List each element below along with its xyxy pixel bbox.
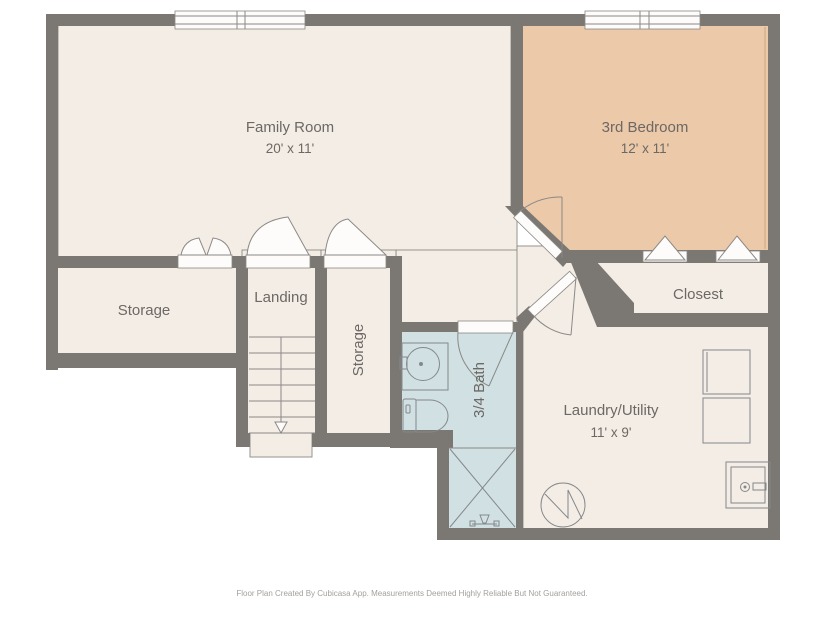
sink-drain: [419, 362, 423, 366]
floor-plan-svg: Family Room 20' x 11' 3rd Bedroom 12' x …: [0, 0, 825, 619]
stair-exit-stub: [250, 433, 312, 457]
threshold-storage-bifold: [178, 255, 232, 268]
landing-label: Landing: [254, 289, 307, 306]
threshold-landing-door: [246, 255, 310, 268]
laundry-label: Laundry/Utility: [563, 402, 659, 419]
wall-closet-bottom: [618, 313, 780, 327]
wall-storage-mid-right: [390, 256, 402, 448]
bedroom-label: 3rd Bedroom: [602, 119, 689, 136]
wall-bedroom-left: [511, 14, 523, 207]
bedroom-floor: [511, 20, 774, 258]
threshold-bath-door: [458, 321, 513, 333]
closet-label: Closest: [673, 286, 724, 303]
wall-stair-left: [236, 256, 248, 445]
footer-disclaimer: Floor Plan Created By Cubicasa App. Meas…: [236, 589, 587, 598]
wall-right: [768, 14, 780, 540]
family-room-dims: 20' x 11': [266, 141, 314, 156]
window-family-room: [175, 11, 305, 29]
bath-label: 3/4 Bath: [471, 362, 488, 418]
wall-stair-bottom-a: [236, 433, 250, 447]
wall-landing-right: [315, 256, 327, 445]
wall-stair-bottom-b: [312, 433, 402, 447]
bedroom-dims: 12' x 11': [621, 141, 669, 156]
wall-bottom: [437, 528, 780, 540]
threshold-storage-mid-door: [324, 255, 386, 268]
wall-storage-bottom: [46, 353, 248, 368]
window-frame: [585, 11, 700, 29]
family-room-label: Family Room: [246, 119, 334, 136]
wall-left: [46, 14, 58, 370]
storage-mid-label: Storage: [350, 324, 367, 377]
wall-bath-right: [516, 322, 523, 540]
wall-bath-top-a: [396, 322, 458, 332]
laundry-dims: 11' x 9': [591, 425, 632, 440]
window-bedroom: [585, 11, 700, 29]
bedroom-floor-group: [511, 20, 774, 258]
storage-left-label: Storage: [118, 302, 171, 319]
floor-plan-page: Family Room 20' x 11' 3rd Bedroom 12' x …: [0, 0, 825, 619]
utility-sink-drain-dot: [744, 486, 747, 489]
window-frame: [175, 11, 305, 29]
wall-familyroom-bottom-a: [46, 256, 178, 268]
wall-shower-left: [437, 445, 449, 540]
